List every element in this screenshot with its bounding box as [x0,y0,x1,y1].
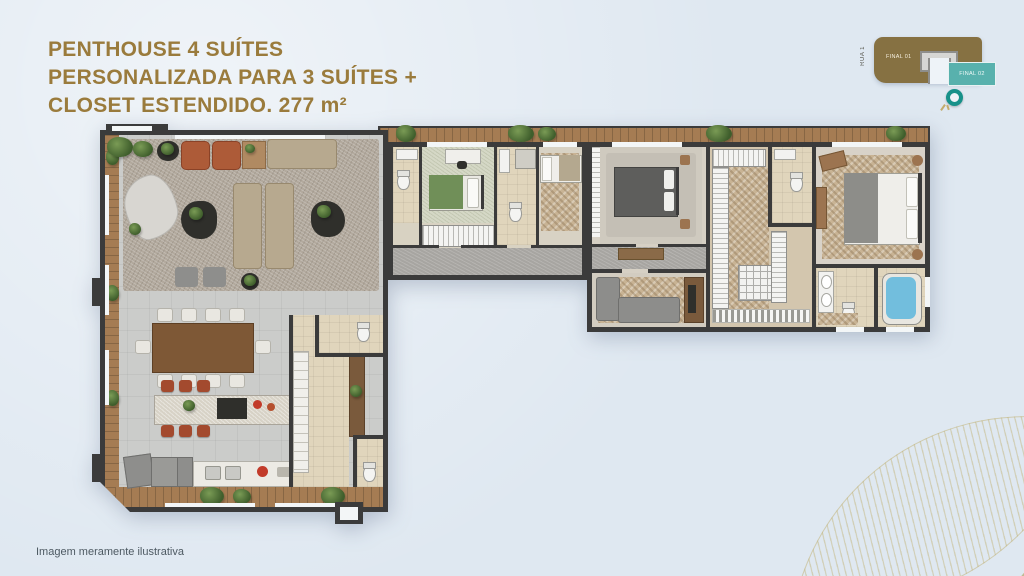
plant [107,137,133,157]
hallway [393,248,582,275]
plant [350,385,362,397]
window [612,142,682,147]
wall [315,353,383,357]
dining-chair [229,374,245,388]
service-nook-floor [340,507,358,520]
sink [205,466,221,480]
plant [161,143,174,155]
plant [183,400,195,411]
living-wing [100,130,388,512]
disclaimer-text: Imagem meramente ilustrativa [36,546,184,558]
wall [874,268,878,327]
closet-shelving-top [712,149,766,167]
wardrobe [422,225,496,247]
dining-chair [135,340,151,354]
wall [393,245,439,248]
bed-headboard [481,175,484,209]
keyplan-street-label: RUA 1 [860,46,866,66]
bathtub-water [886,277,916,319]
vanity [774,149,796,160]
closet-shelving-left [712,167,729,309]
plant [245,144,255,153]
sink [821,293,832,307]
closet-shelving-right [771,231,787,303]
bed-pillow [664,192,674,211]
tv [688,285,696,313]
plant [244,275,256,286]
island-stool [161,425,174,437]
pin-sparkle-icon [946,105,950,110]
plant [706,125,732,142]
shower [515,149,536,169]
coffee-table [181,201,217,239]
plant [129,223,141,235]
planter-box [92,454,102,482]
suites-wing [388,142,587,280]
wall [531,245,582,248]
window [105,350,109,405]
window [105,175,109,235]
plant [317,205,331,218]
vanity [396,149,418,160]
pin-sparkle-icon [940,104,946,111]
red-cookware [257,466,268,477]
slide: PENTHOUSE 4 SUÍTES PERSONALIZADA PARA 3 … [0,0,1024,576]
kitchen-tall-units [293,351,309,473]
armchair [181,141,210,170]
floor-plan [96,124,936,526]
keyplan-final2-label: FINAL 02 [959,71,984,77]
sideboard [618,248,664,260]
island-stool [197,380,210,392]
bed-pillow [467,178,479,208]
plant [886,126,906,141]
plant [538,127,556,141]
island-stool [197,425,210,437]
master-wing [587,142,930,332]
nightstand [680,219,690,229]
planter-box [92,278,102,306]
plant [233,489,251,504]
dining-chair [205,308,221,322]
dining-chair [229,308,245,322]
plant [133,141,153,157]
toilet [397,173,410,190]
title-line-3: CLOSET ESTENDIDO. 277 m² [48,92,417,120]
nightstand [912,249,923,260]
dining-chair [181,308,197,322]
keyplan-final1-label: FINAL 01 [886,54,911,60]
plant [396,125,416,142]
window [165,503,255,507]
bed-pillow [906,177,918,207]
bed-blanket [559,155,580,181]
bed-pillow [906,209,918,239]
terrace-lounge-sofa [177,457,193,487]
keyplan: RUA 1 FINAL 01 FINAL 02 [860,34,994,118]
bed-blanket [844,173,878,243]
window [275,503,335,507]
dining-table [152,323,254,373]
family-sofa [618,297,680,323]
sink [821,275,832,289]
terrace-lounge-sofa [151,457,179,487]
sofa-chaise [265,183,294,269]
window [175,135,325,139]
plant [189,207,203,220]
bed-headboard [918,173,922,243]
shower-mosaic [818,313,858,325]
island-stool [179,380,192,392]
red-cookware [253,400,262,409]
planter-box [112,126,152,131]
armchair [212,141,241,170]
page-title: PENTHOUSE 4 SUÍTES PERSONALIZADA PARA 3 … [48,36,417,120]
sofa-top [267,139,337,169]
toilet [363,465,376,482]
cooktop [217,398,247,419]
lavabo [319,315,383,353]
island-stool [161,380,174,392]
window [832,142,902,147]
dresser [816,187,827,229]
desk-chair [457,161,467,169]
red-cookware [267,403,275,411]
location-pin-icon [946,89,963,106]
keyplan-unit-highlight: FINAL 02 [948,62,996,86]
bed-headboard [676,167,679,215]
bed-pillow [664,170,674,189]
dining-chair [255,340,271,354]
sofa-chaise [233,183,262,269]
closet-label-band [712,309,810,323]
window [925,277,930,307]
window [836,327,864,332]
nightstand [680,155,690,165]
nightstand [912,155,923,166]
title-line-1: PENTHOUSE 4 SUÍTES [48,36,417,64]
window [886,327,914,332]
toilet [509,205,522,222]
wall [461,245,507,248]
family-sofa [596,277,620,321]
bed-blanket-green [429,175,463,209]
title-line-2: PERSONALIZADA PARA 3 SUÍTES + [48,64,417,92]
ottoman [175,267,198,287]
wardrobe-divider [592,147,600,237]
bed-pillow [542,157,552,181]
island-stool [179,425,192,437]
window [427,142,487,147]
dining-chair [157,308,173,322]
window [543,142,577,147]
wall [768,223,812,227]
plant [508,125,534,142]
sink [225,466,241,480]
vanity [499,149,510,173]
toilet [790,175,803,192]
toilet [357,325,370,342]
window [105,265,109,315]
ottoman [203,267,226,287]
